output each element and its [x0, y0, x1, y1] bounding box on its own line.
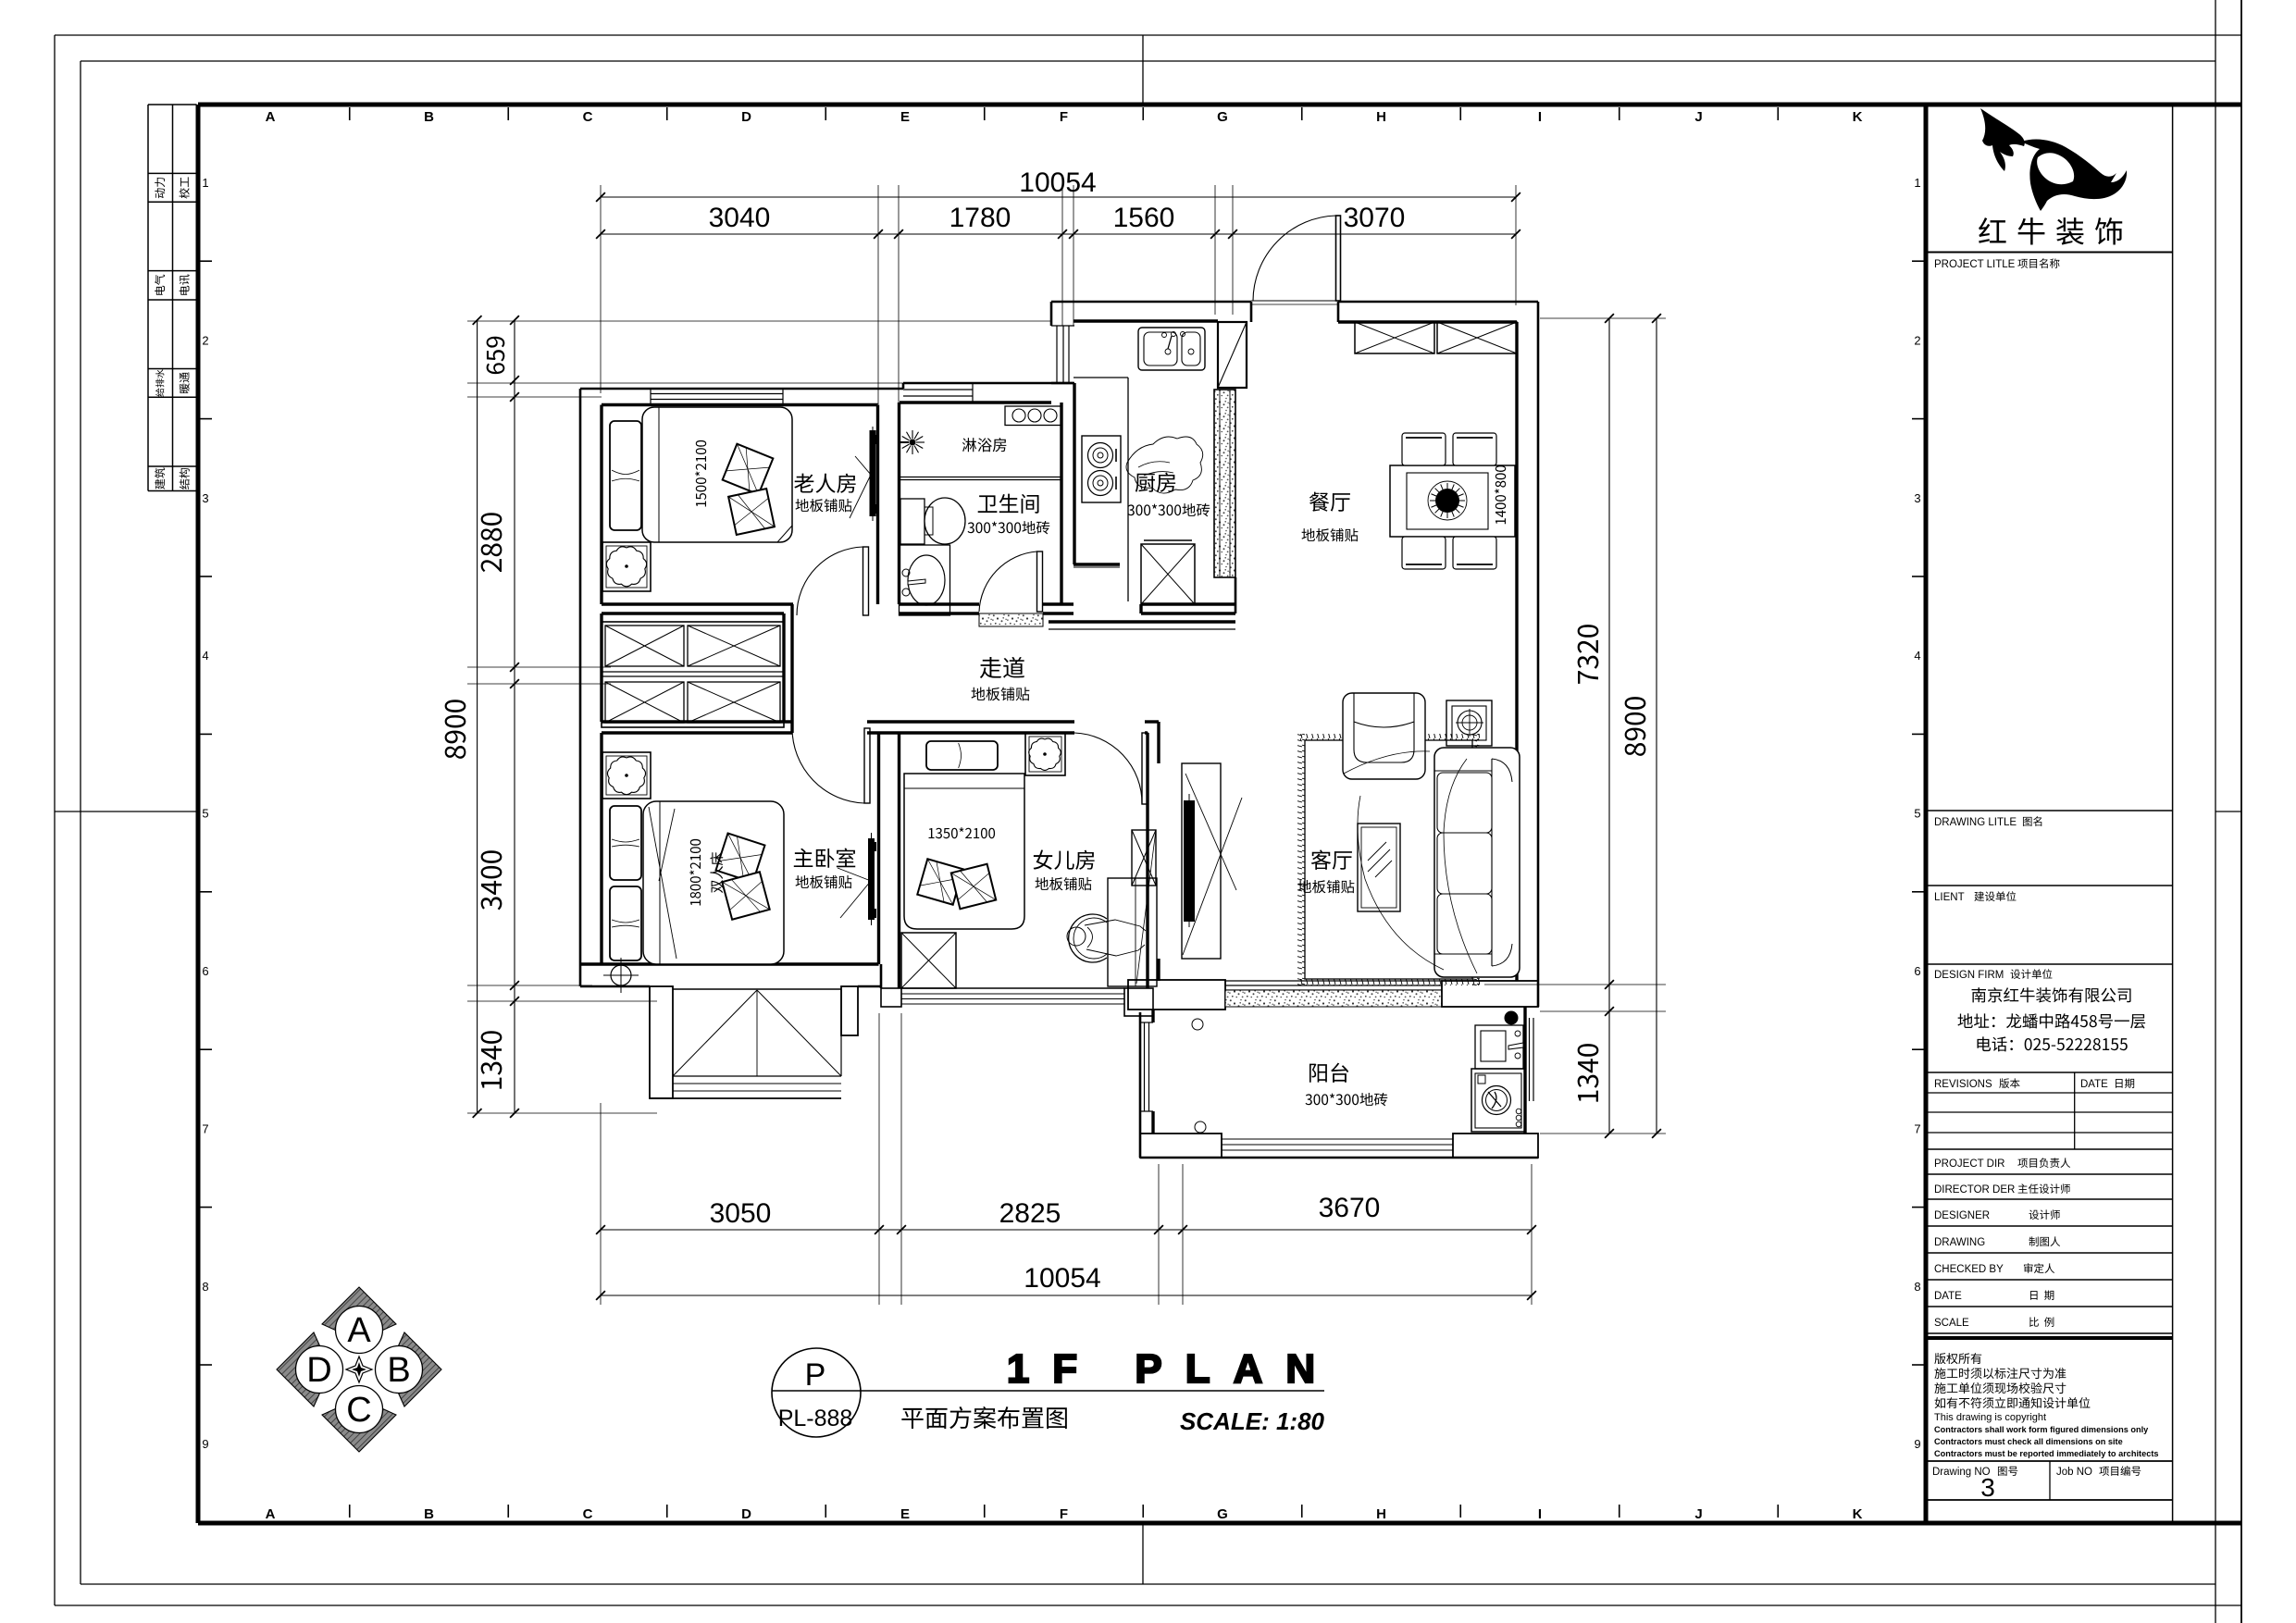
- svg-text:5: 5: [202, 807, 208, 821]
- svg-text:PL-888: PL-888: [778, 1406, 853, 1431]
- svg-text:F: F: [1060, 1506, 1068, 1522]
- svg-text:9: 9: [202, 1437, 208, 1451]
- svg-text:3670: 3670: [1319, 1193, 1381, 1223]
- svg-text:J: J: [1694, 1506, 1702, 1522]
- svg-text:9: 9: [1914, 1437, 1920, 1451]
- svg-text:1F PLAN: 1F PLAN: [1007, 1346, 1338, 1392]
- svg-text:8: 8: [202, 1280, 208, 1294]
- svg-text:C: C: [583, 1506, 593, 1522]
- svg-text:2: 2: [1914, 333, 1920, 347]
- svg-text:SCALE: SCALE: [1934, 1318, 1969, 1329]
- svg-text:SCALE: 1:80: SCALE: 1:80: [1180, 1407, 1325, 1435]
- svg-text:DATE: DATE: [2080, 1079, 2108, 1090]
- svg-text:8: 8: [1914, 1280, 1920, 1294]
- svg-text:LIENT: LIENT: [1934, 892, 1965, 903]
- svg-text:B: B: [424, 109, 434, 125]
- svg-text:6: 6: [202, 964, 208, 978]
- svg-text:A: A: [266, 109, 276, 125]
- svg-text:D: D: [741, 109, 751, 125]
- svg-text:A: A: [347, 1311, 371, 1350]
- svg-text:6: 6: [1914, 964, 1920, 978]
- svg-text:7: 7: [202, 1121, 208, 1135]
- svg-text:A: A: [266, 1506, 276, 1522]
- svg-text:CHECKED BY: CHECKED BY: [1934, 1264, 2004, 1275]
- svg-text:1: 1: [202, 176, 208, 190]
- svg-text:PROJECT LITLE: PROJECT LITLE: [1934, 259, 2016, 270]
- svg-text:7: 7: [1914, 1121, 1920, 1135]
- svg-text:J: J: [1694, 109, 1702, 125]
- svg-text:DRAWING LITLE: DRAWING LITLE: [1934, 817, 2017, 828]
- svg-text:DESIGNER: DESIGNER: [1934, 1210, 1990, 1221]
- svg-text:E: E: [900, 1506, 910, 1522]
- svg-text:10054: 10054: [1024, 1263, 1100, 1294]
- svg-text:1780: 1780: [949, 203, 1011, 233]
- svg-text:2: 2: [202, 333, 208, 347]
- svg-text:C: C: [583, 109, 593, 125]
- svg-text:G: G: [1217, 109, 1228, 125]
- svg-text:3: 3: [1980, 1473, 1995, 1502]
- svg-text:C: C: [346, 1391, 371, 1430]
- svg-text:DESIGN FIRM: DESIGN FIRM: [1934, 970, 2004, 981]
- svg-text:1560: 1560: [1113, 203, 1175, 233]
- svg-text:10054: 10054: [1019, 167, 1096, 198]
- svg-text:H: H: [1376, 109, 1386, 125]
- svg-text:Contractors must check all dim: Contractors must check all dimensions on…: [1934, 1437, 2123, 1446]
- svg-text:3: 3: [202, 491, 208, 505]
- svg-text:Contractors must be reported i: Contractors must be reported immediately…: [1934, 1449, 2159, 1458]
- svg-text:5: 5: [1914, 807, 1920, 821]
- svg-text:Contractors shall work form fi: Contractors shall work form figured dime…: [1934, 1425, 2149, 1434]
- svg-text:Job NO: Job NO: [2056, 1467, 2092, 1478]
- svg-text:3: 3: [1914, 491, 1920, 505]
- svg-text:This drawing is copyright: This drawing is copyright: [1934, 1412, 2046, 1423]
- svg-text:DIRECTOR DER: DIRECTOR DER: [1934, 1184, 2015, 1196]
- svg-text:H: H: [1376, 1506, 1386, 1522]
- svg-text:K: K: [1853, 1506, 1863, 1522]
- svg-text:DATE: DATE: [1934, 1291, 1962, 1302]
- svg-text:B: B: [387, 1351, 410, 1390]
- svg-text:REVISIONS: REVISIONS: [1934, 1079, 1992, 1090]
- svg-text:3040: 3040: [709, 203, 771, 233]
- svg-text:PROJECT DIR: PROJECT DIR: [1934, 1158, 2004, 1170]
- svg-text:G: G: [1217, 1506, 1228, 1522]
- svg-text:I: I: [1538, 109, 1542, 125]
- svg-text:4: 4: [1914, 649, 1920, 663]
- svg-text:B: B: [424, 1506, 434, 1522]
- svg-text:E: E: [900, 109, 910, 125]
- svg-text:1: 1: [1914, 176, 1920, 190]
- svg-text:3070: 3070: [1344, 203, 1406, 233]
- svg-text:D: D: [741, 1506, 751, 1522]
- svg-text:I: I: [1538, 1506, 1542, 1522]
- svg-text:4: 4: [202, 649, 208, 663]
- svg-text:D: D: [306, 1351, 331, 1390]
- svg-text:3050: 3050: [710, 1198, 772, 1229]
- svg-text:DRAWING: DRAWING: [1934, 1237, 1985, 1248]
- svg-text:P: P: [805, 1357, 826, 1393]
- svg-text:F: F: [1060, 109, 1068, 125]
- svg-text:2825: 2825: [999, 1198, 1061, 1229]
- svg-text:K: K: [1853, 109, 1863, 125]
